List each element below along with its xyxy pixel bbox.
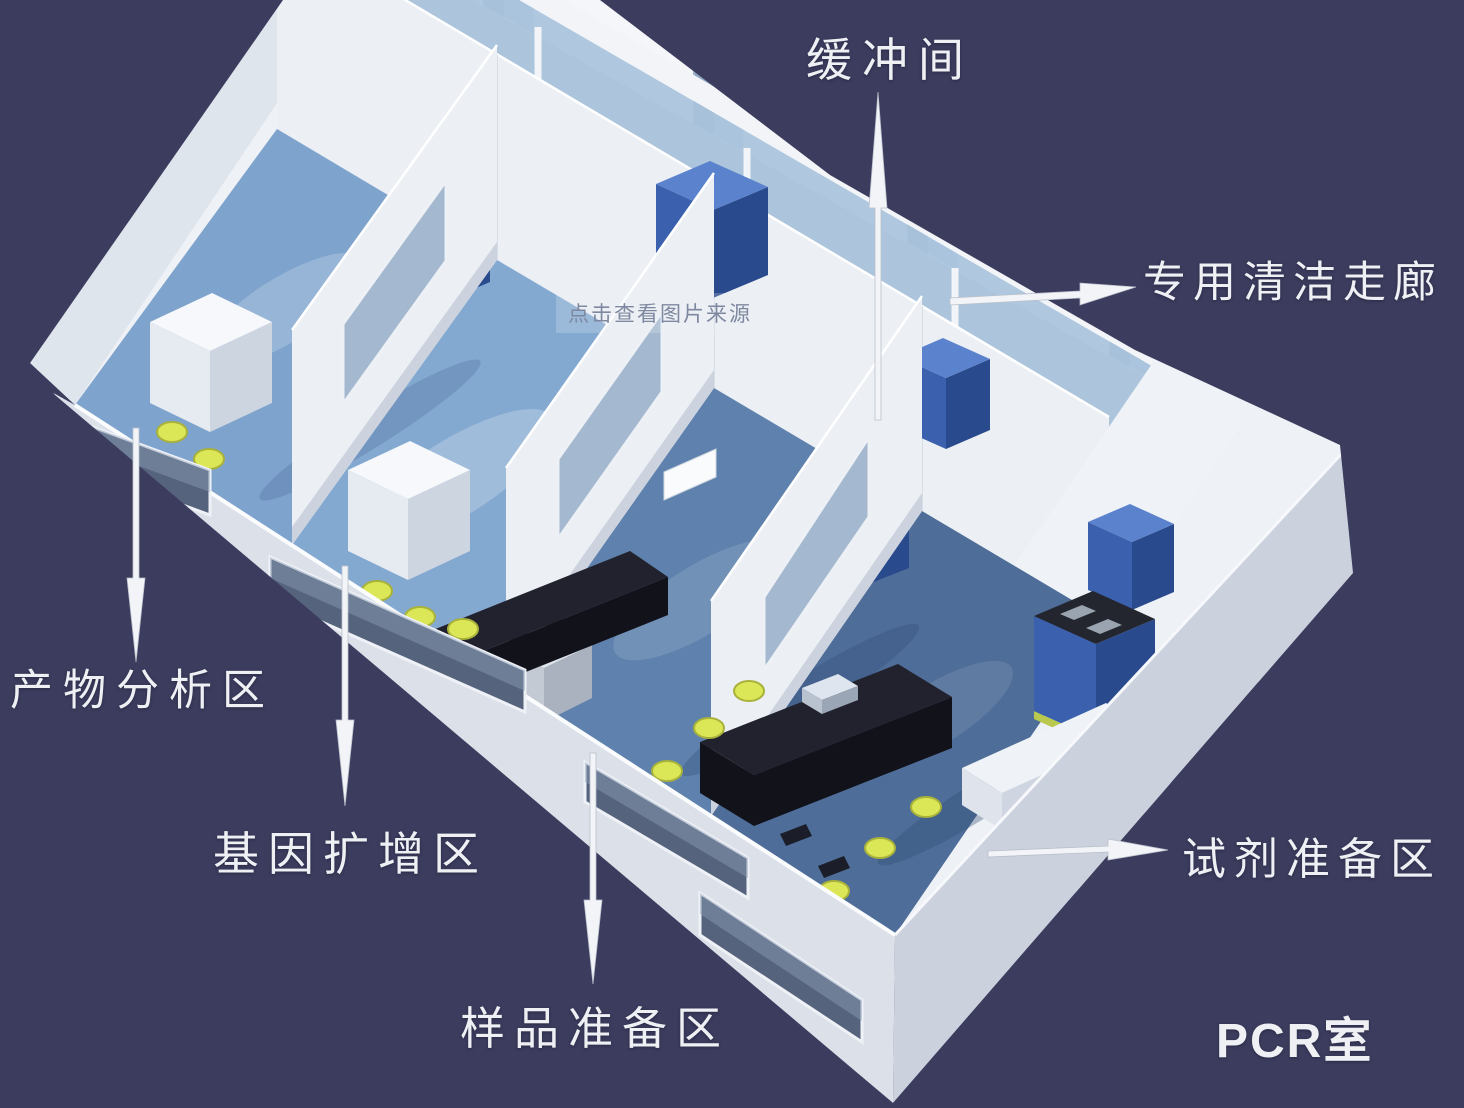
- label-reagent-preparation: 试剂准备区: [1182, 836, 1442, 884]
- label-pcr-room: PCR室: [1216, 1016, 1373, 1069]
- label-sample-preparation: 样品准备区: [460, 1005, 730, 1055]
- stool: [865, 838, 895, 858]
- label-gene-amplification: 基因扩增区: [213, 830, 488, 881]
- stool: [157, 422, 187, 442]
- stool: [652, 761, 682, 781]
- image-source-watermark[interactable]: 点击查看图片来源: [556, 293, 764, 333]
- pcr-lab-3d-scene: [0, 0, 1464, 1108]
- label-clean-corridor: 专用清洁走廊: [1143, 260, 1443, 307]
- pass-box-5: [1088, 504, 1174, 610]
- white-machine-2: [348, 441, 470, 580]
- white-machine-1: [150, 293, 272, 432]
- stool: [734, 681, 764, 701]
- stool: [694, 718, 724, 738]
- pcr-lab-diagram: 缓冲间 专用清洁走廊 产物分析区 基因扩增区 样品准备区 试剂准备区 PCR室 …: [0, 0, 1464, 1108]
- stool: [911, 797, 941, 817]
- stool: [448, 619, 478, 639]
- label-product-analysis: 产物分析区: [10, 668, 275, 715]
- label-buffer-room: 缓冲间: [806, 36, 974, 87]
